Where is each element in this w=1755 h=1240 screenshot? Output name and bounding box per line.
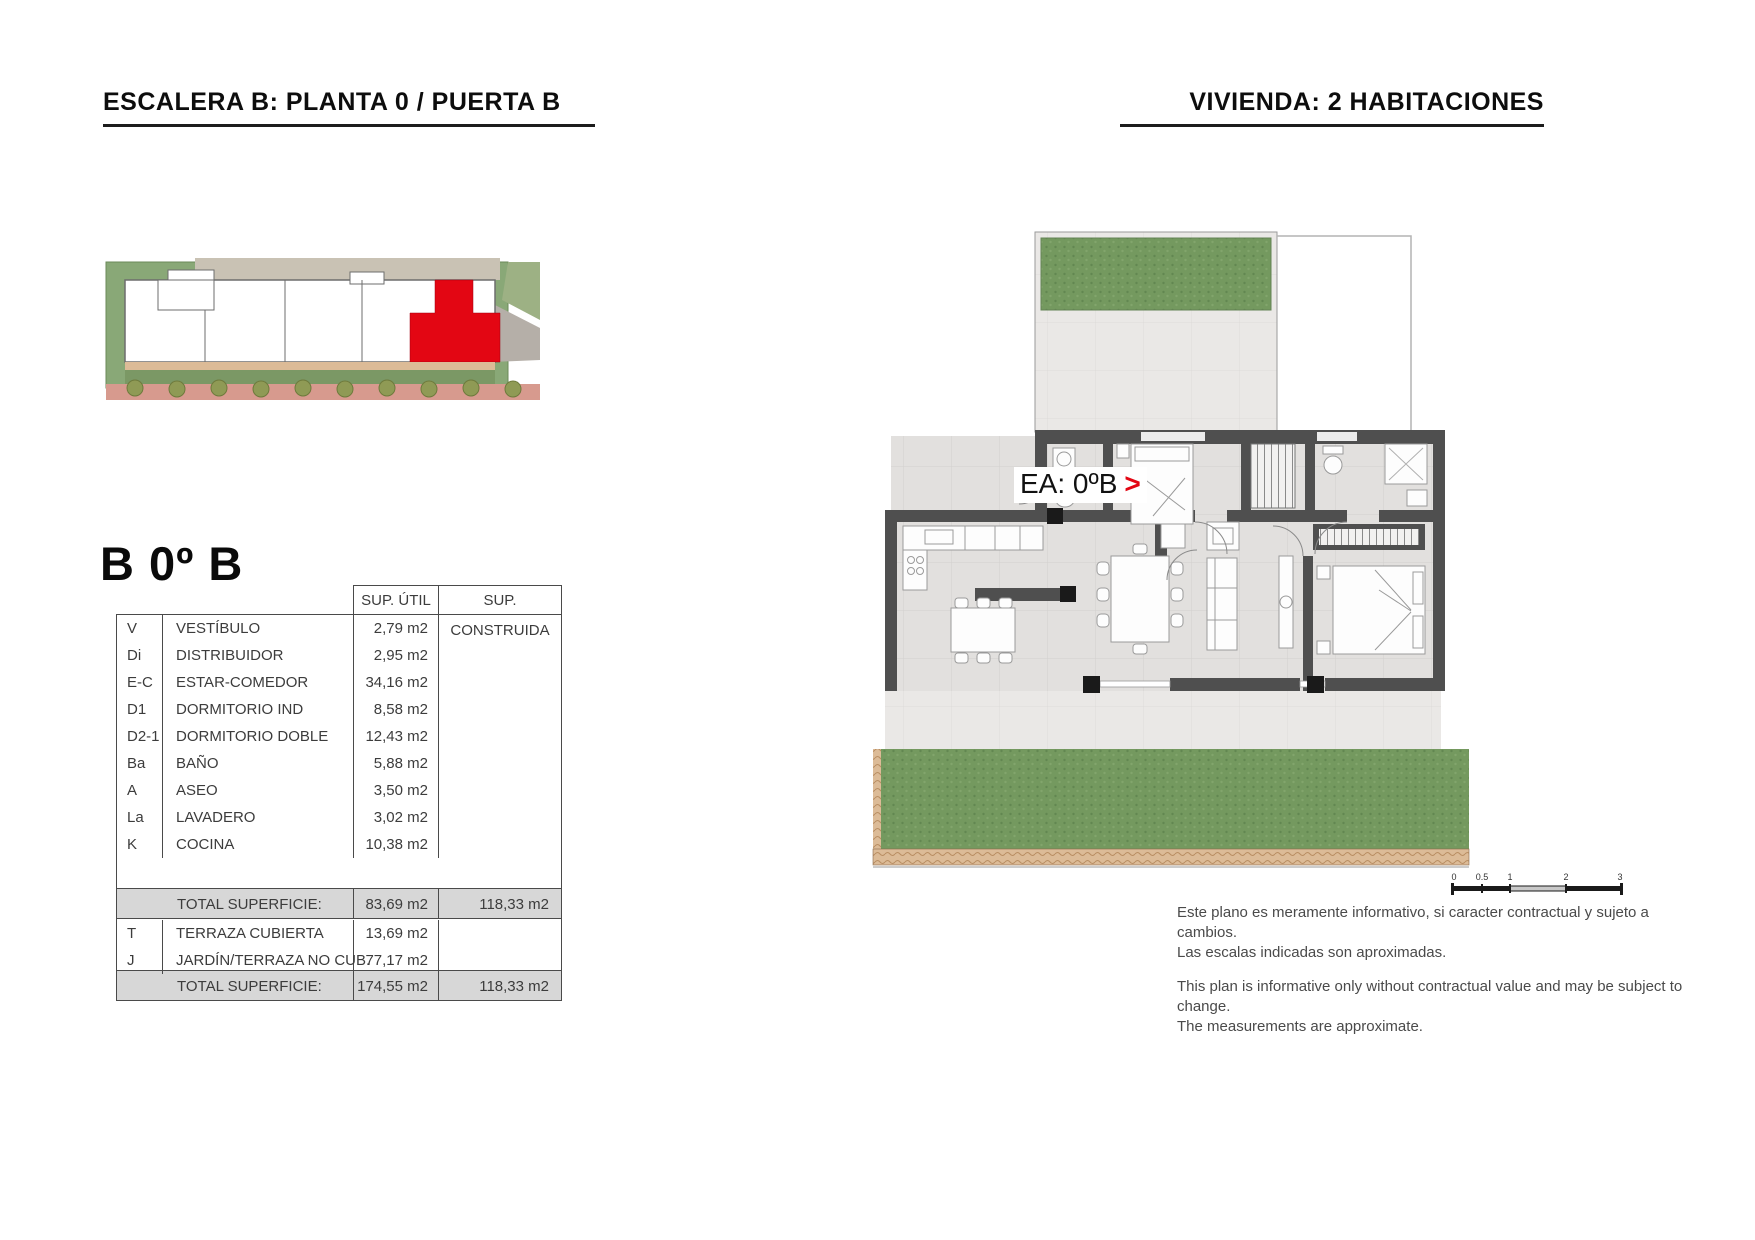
table-row: D1 DORMITORIO IND 8,58 m2 [117, 696, 561, 723]
room-name: JARDÍN/TERRAZA NO CUB. [163, 947, 354, 974]
room-code: Ba [117, 750, 163, 777]
disclaimer-line-en1: This plan is informative only without co… [1177, 977, 1707, 1017]
room-constr [439, 804, 561, 831]
upper-terrace [1035, 232, 1277, 432]
room-util: 77,17 m2 [354, 947, 439, 974]
room-constr [439, 696, 561, 723]
room-code: D2-1 [117, 723, 163, 750]
unit-pointer-label: EA: 0ºB> [1014, 467, 1147, 503]
pillar [1047, 508, 1063, 524]
closet [1251, 444, 1295, 508]
room-name: COCINA [163, 831, 354, 858]
double-bed [1333, 566, 1425, 654]
plot-boundary-line [1277, 236, 1411, 430]
col-header-constr: SUP. CONSTRUIDA [439, 586, 561, 614]
room-util: 2,79 m2 [354, 615, 439, 642]
total-row-1: TOTAL SUPERFICIE: 83,69 m2 118,33 m2 [116, 888, 562, 919]
kitchen-counter [903, 526, 1043, 550]
terrace-floor [885, 691, 1441, 749]
sofa [1207, 558, 1237, 650]
outdoor-table [951, 608, 1015, 652]
room-name: ESTAR-COMEDOR [163, 669, 354, 696]
room-name: DISTRIBUIDOR [163, 642, 354, 669]
room-constr [439, 615, 561, 642]
table-row: J JARDÍN/TERRAZA NO CUB. 77,17 m2 [117, 947, 561, 974]
kitchen-sink [925, 530, 953, 544]
side-table [1161, 524, 1185, 548]
tv-bench [1279, 556, 1293, 648]
lower-garden [873, 749, 1469, 867]
unit-title: B 0º B [100, 536, 243, 591]
table-row: Di DISTRIBUIDOR 2,95 m2 [117, 642, 561, 669]
site-building [125, 270, 500, 362]
room-constr [439, 947, 561, 974]
room-name: ASEO [163, 777, 354, 804]
room-code: T [117, 920, 163, 947]
total-constr: 118,33 m2 [439, 889, 561, 918]
page-title-right: VIVIENDA: 2 HABITACIONES [1120, 88, 1544, 127]
scale-tick-label: 3 [1617, 872, 1622, 882]
room-name: DORMITORIO IND [163, 696, 354, 723]
bath-sink [1407, 490, 1427, 506]
room-util: 5,88 m2 [354, 750, 439, 777]
scale-tick-label: 1 [1507, 872, 1512, 882]
site-driveway [195, 258, 500, 280]
nightstand [1317, 641, 1330, 654]
room-util: 3,50 m2 [354, 777, 439, 804]
room-util: 2,95 m2 [354, 642, 439, 669]
nightstand [1317, 566, 1330, 579]
room-code: J [117, 947, 163, 974]
room-name: TERRAZA CUBIERTA [163, 920, 354, 947]
garden-grass [881, 749, 1469, 849]
pillar [1307, 676, 1324, 693]
room-constr [439, 642, 561, 669]
scale-tick-label: 0 [1451, 872, 1456, 882]
room-util: 10,38 m2 [354, 831, 439, 858]
room-code: K [117, 831, 163, 858]
room-util: 12,43 m2 [354, 723, 439, 750]
total-util: 83,69 m2 [354, 889, 439, 918]
total-label: TOTAL SUPERFICIE: [117, 971, 354, 1000]
room-name: DORMITORIO DOBLE [163, 723, 354, 750]
scale-bar-segments [1451, 883, 1623, 895]
room-code: D1 [117, 696, 163, 723]
room-constr [439, 723, 561, 750]
nightstand [1117, 444, 1129, 458]
room-util: 3,02 m2 [354, 804, 439, 831]
table-row: K COCINA 10,38 m2 [117, 831, 561, 858]
room-code: A [117, 777, 163, 804]
garden-bottom-border [873, 849, 1469, 865]
toilet [1324, 456, 1342, 474]
room-constr [439, 750, 561, 777]
room-constr [439, 831, 561, 858]
wardrobe [1319, 529, 1419, 545]
floorplan-drawing [855, 226, 1485, 876]
scale-tick-label: 0.5 [1476, 872, 1489, 882]
upper-garden-grass [1041, 238, 1271, 310]
room-util: 13,69 m2 [354, 920, 439, 947]
table-header-row: SUP. ÚTIL SUP. CONSTRUIDA [353, 585, 562, 615]
pillar [1060, 586, 1076, 602]
unit-pointer-text: EA: 0ºB [1020, 468, 1117, 499]
room-util: 8,58 m2 [354, 696, 439, 723]
room-code: V [117, 615, 163, 642]
disclaimer-line-es1: Este plano es meramente informativo, si … [1177, 903, 1707, 943]
total-util: 174,55 m2 [354, 971, 439, 1000]
room-constr [439, 777, 561, 804]
table-row: La LAVADERO 3,02 m2 [117, 804, 561, 831]
disclaimer: Este plano es meramente informativo, si … [1177, 903, 1707, 1037]
table-row: E-C ESTAR-COMEDOR 34,16 m2 [117, 669, 561, 696]
scale-bar: 0 0.5 1 2 3 [1450, 870, 1624, 900]
page-title-left: ESCALERA B: PLANTA 0 / PUERTA B [103, 88, 595, 127]
dining-table [1111, 556, 1169, 642]
room-name: LAVADERO [163, 804, 354, 831]
col-header-util: SUP. ÚTIL [354, 586, 439, 614]
toilet-tank [1323, 446, 1343, 454]
room-code: Di [117, 642, 163, 669]
disclaimer-line-es2: Las escalas indicadas son aproximadas. [1177, 943, 1707, 963]
extras-box: T TERRAZA CUBIERTA 13,69 m2 J JARDÍN/TER… [116, 918, 562, 972]
total-label: TOTAL SUPERFICIE: [117, 889, 354, 918]
disclaimer-line-en2: The measurements are approximate. [1177, 1017, 1707, 1037]
scale-tick-label: 2 [1563, 872, 1568, 882]
site-plan-map [100, 250, 540, 400]
room-code: E-C [117, 669, 163, 696]
room-util: 34,16 m2 [354, 669, 439, 696]
table-row: V VESTÍBULO 2,79 m2 [117, 615, 561, 642]
surface-table: SUP. ÚTIL SUP. CONSTRUIDA V VESTÍBULO 2,… [116, 585, 562, 1001]
room-name: VESTÍBULO [163, 615, 354, 642]
table-body: V VESTÍBULO 2,79 m2 Di DISTRIBUIDOR 2,95… [116, 614, 562, 890]
pillar [1083, 676, 1100, 693]
table-row: D2-1 DORMITORIO DOBLE 12,43 m2 [117, 723, 561, 750]
red-chevron-icon: > [1124, 468, 1140, 499]
plan-sheet: ESCALERA B: PLANTA 0 / PUERTA B VIVIENDA… [0, 0, 1755, 1240]
table-row: T TERRAZA CUBIERTA 13,69 m2 [117, 920, 561, 947]
room-name: BAÑO [163, 750, 354, 777]
room-constr [439, 920, 561, 947]
table-row: Ba BAÑO 5,88 m2 [117, 750, 561, 777]
total-constr: 118,33 m2 [439, 971, 561, 1000]
total-row-2: TOTAL SUPERFICIE: 174,55 m2 118,33 m2 [116, 970, 562, 1001]
table-row: A ASEO 3,50 m2 [117, 777, 561, 804]
garden-left-border [873, 749, 881, 849]
room-constr [439, 669, 561, 696]
window [1100, 681, 1170, 687]
room-code: La [117, 804, 163, 831]
